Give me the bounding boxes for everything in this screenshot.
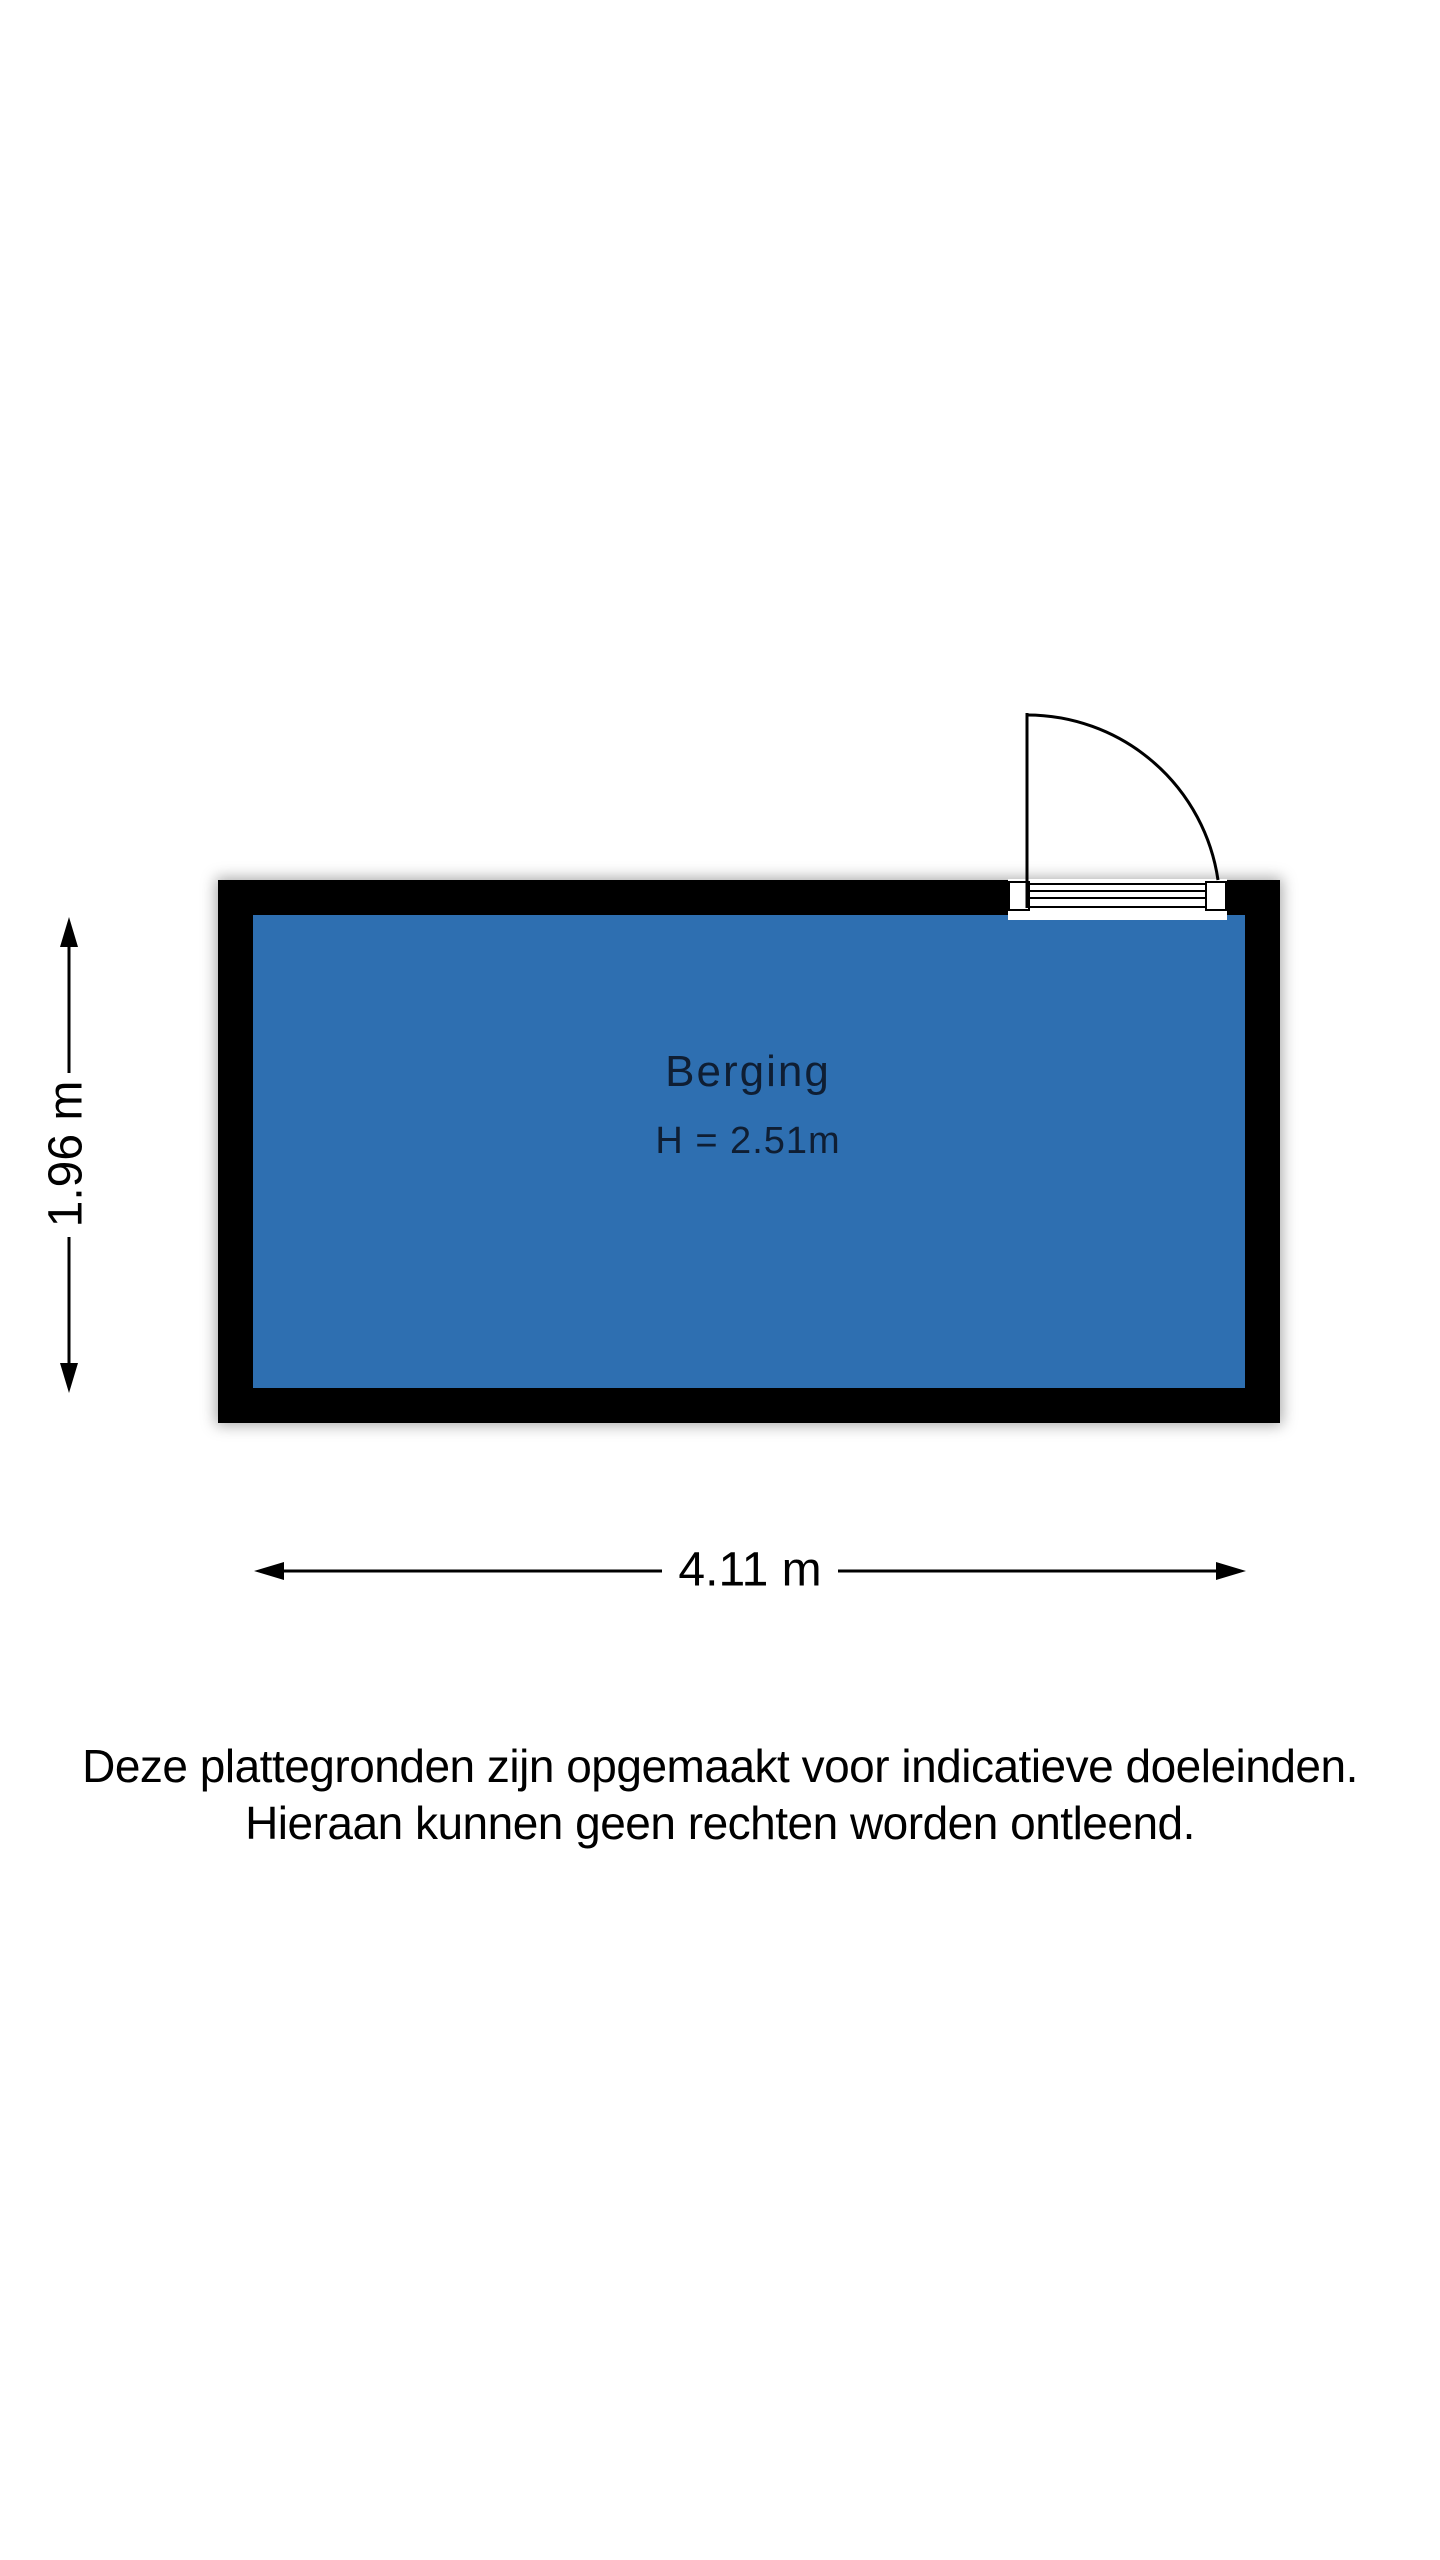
- room-ceiling-height-label: H = 2.51m: [253, 1120, 1243, 1162]
- room-label-block: Berging H = 2.51m: [253, 1048, 1243, 1162]
- dimension-width-label: 4.11 m: [678, 1543, 821, 1598]
- arrow-down-icon: [60, 1363, 78, 1393]
- arrow-right-icon: [1216, 1562, 1246, 1580]
- door-swing-icon: [1010, 700, 1240, 920]
- floorplan-canvas: Berging H = 2.51m 1.96 m 4.11 m Deze pla…: [0, 0, 1440, 2560]
- room-name-label: Berging: [253, 1048, 1243, 1096]
- dimension-depth-label: 1.96 m: [39, 1081, 94, 1228]
- disclaimer-line-1: Deze plattegronden zijn opgemaakt voor i…: [0, 1738, 1440, 1795]
- arrow-left-icon: [254, 1562, 284, 1580]
- arrow-up-icon: [60, 917, 78, 947]
- door-arc: [1027, 715, 1218, 880]
- disclaimer-block: Deze plattegronden zijn opgemaakt voor i…: [0, 1738, 1440, 1852]
- disclaimer-line-2: Hieraan kunnen geen rechten worden ontle…: [0, 1795, 1440, 1852]
